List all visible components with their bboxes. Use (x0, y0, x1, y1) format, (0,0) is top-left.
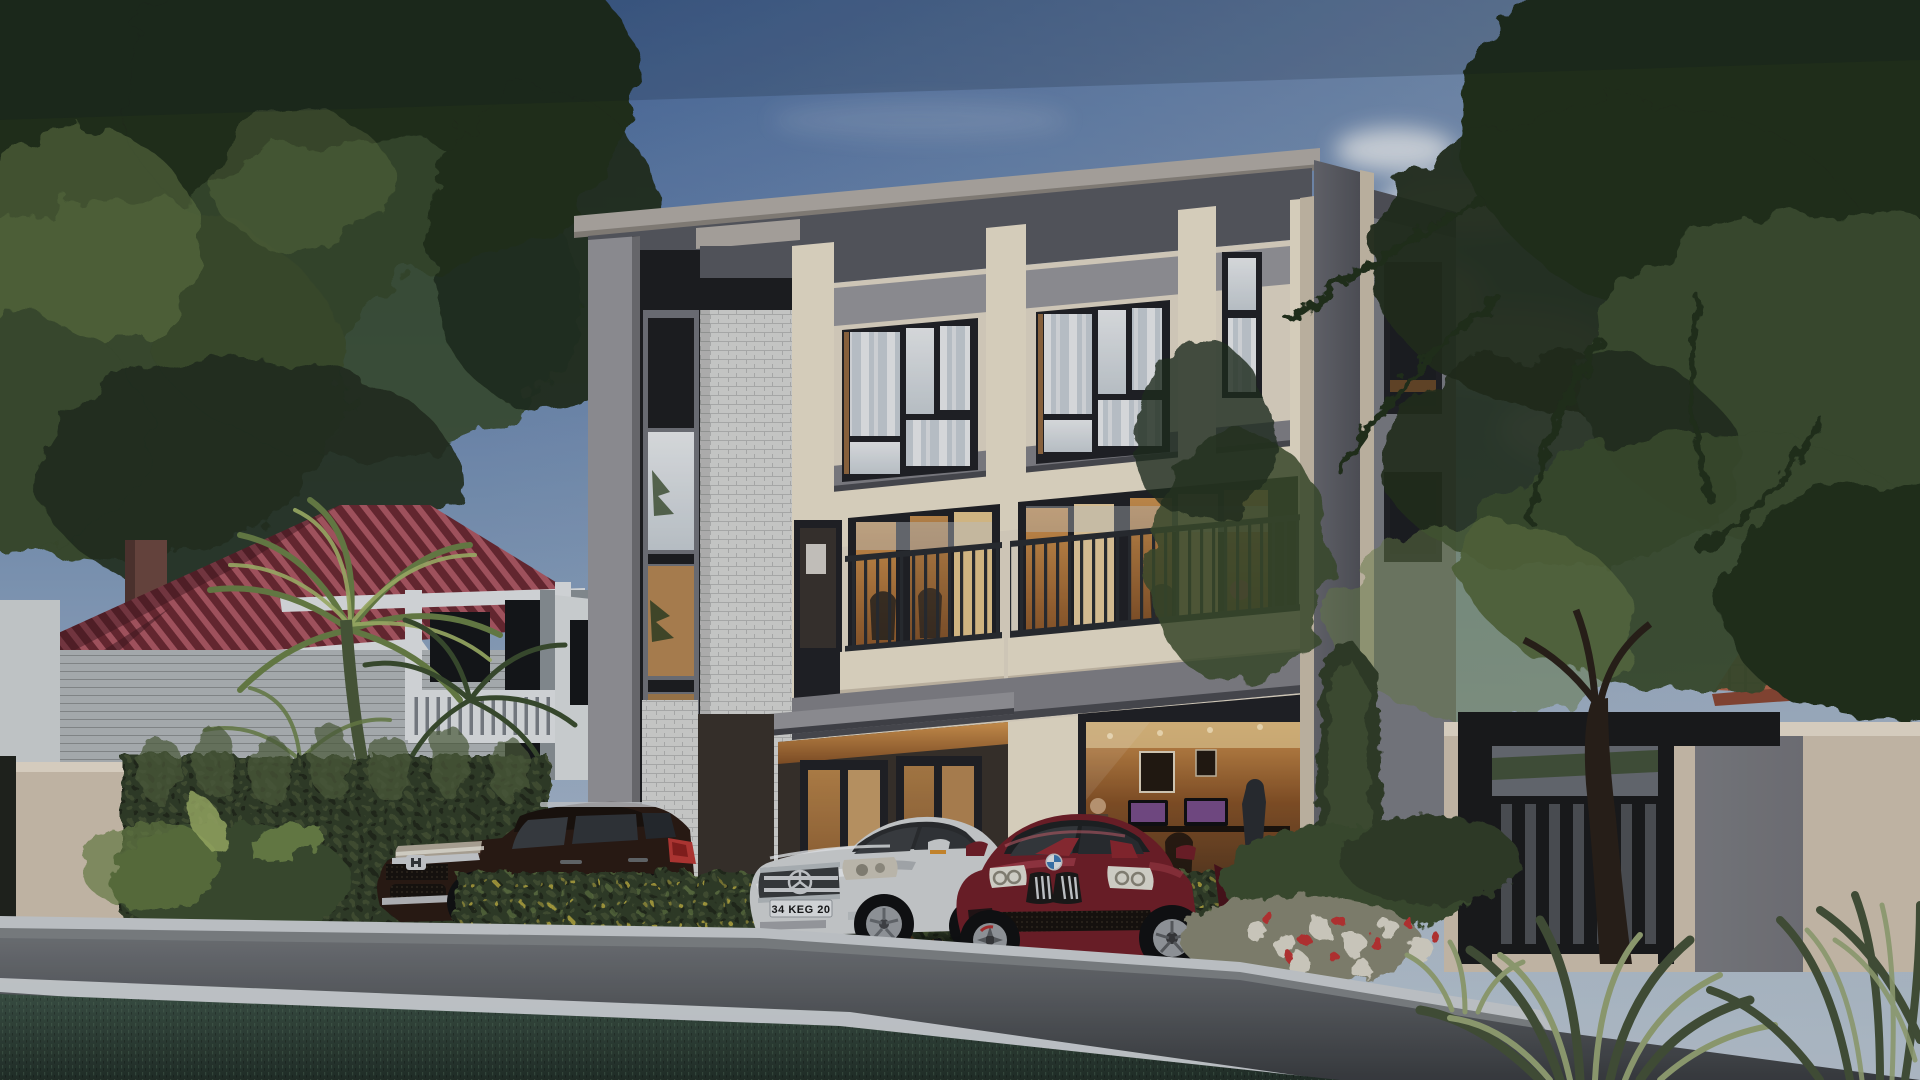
vignette (0, 0, 1920, 1080)
scene-canvas: 34 KEG 20 (0, 0, 1920, 1080)
architectural-render: 34 KEG 20 (0, 0, 1920, 1080)
